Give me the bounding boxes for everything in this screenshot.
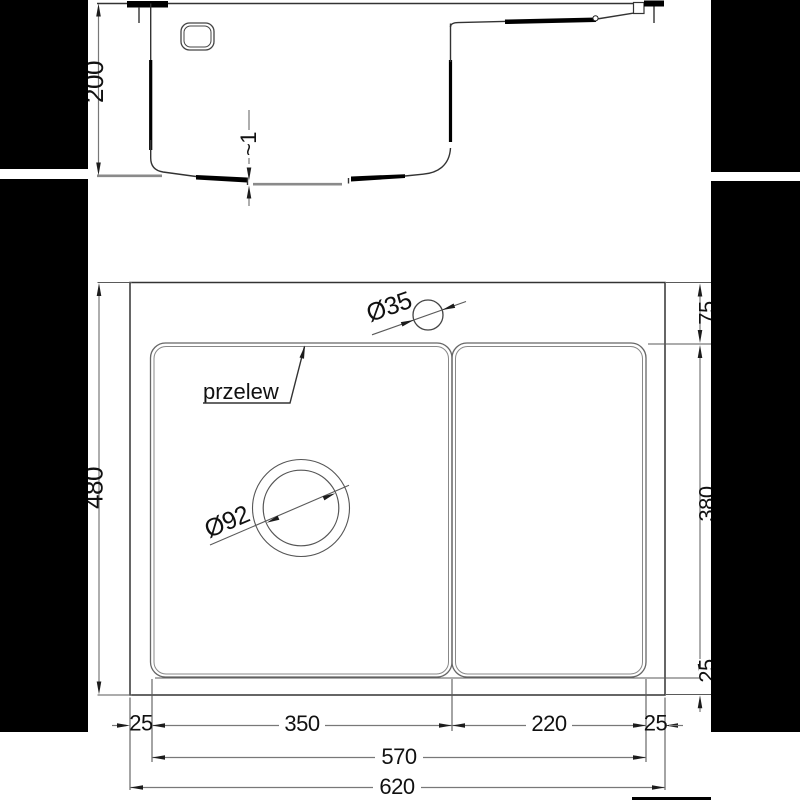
mask-right-top — [711, 0, 800, 172]
mask-left-main — [0, 179, 88, 732]
mask-left-top — [0, 0, 88, 169]
left-margin-dim-text: 25 — [129, 711, 153, 736]
drawing-canvas: 200 ~1 Ø35 Ø92 przelew — [0, 0, 800, 800]
counter-cut-right — [644, 1, 664, 7]
overall-width-dim-text: 620 — [379, 774, 414, 799]
counter-cut-left — [127, 1, 168, 8]
inner-width-dim-text: 570 — [381, 744, 416, 769]
right-margin-dim-text: 25 — [644, 711, 668, 736]
sink-technical-drawing: 200 ~1 Ø35 Ø92 przelew — [0, 0, 800, 800]
paper-background — [0, 0, 800, 800]
mask-right-main — [711, 181, 800, 732]
mounting-clip — [634, 3, 645, 14]
drainboard-weld-bar — [505, 20, 596, 22]
bowl-width-dim-text: 350 — [284, 711, 319, 736]
drainboard-edge-detail-circle — [593, 16, 598, 21]
drainboard-width-dim-text: 220 — [531, 711, 566, 736]
overflow-label: przelew — [203, 379, 279, 404]
step-dim-text: ~1 — [236, 132, 261, 156]
